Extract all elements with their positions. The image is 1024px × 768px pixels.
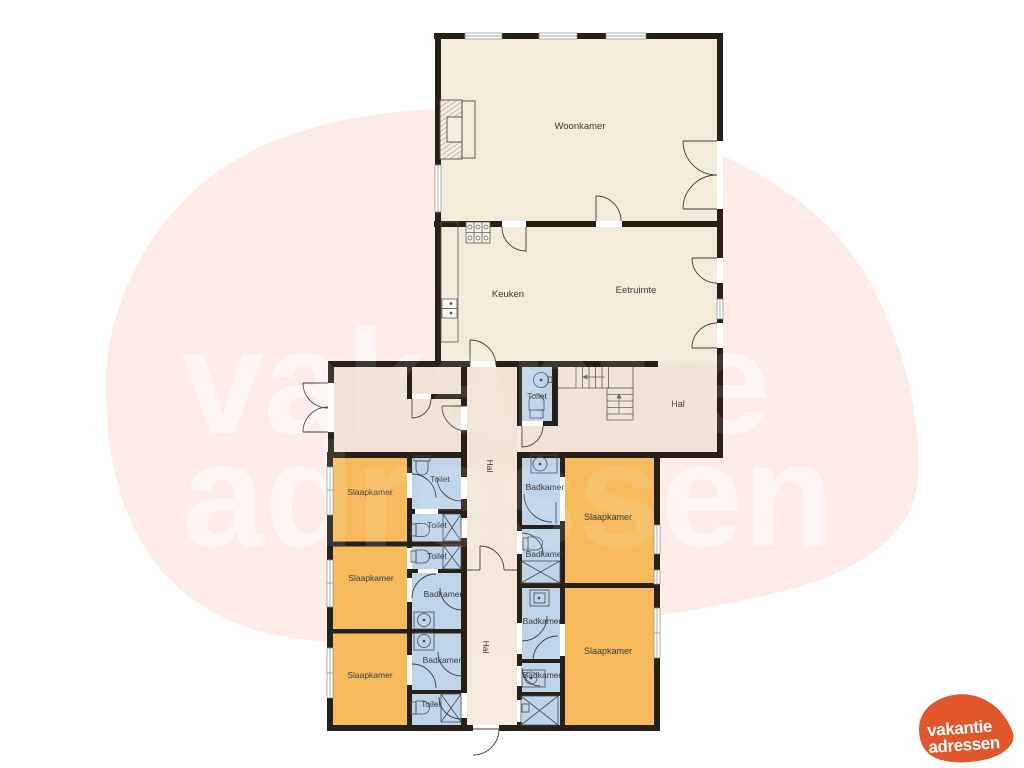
svg-text:Toilet: Toilet bbox=[421, 699, 441, 709]
svg-text:Badkamer: Badkamer bbox=[523, 670, 562, 680]
svg-text:Badkamer: Badkamer bbox=[423, 655, 462, 665]
svg-text:Slaapkamer: Slaapkamer bbox=[584, 646, 632, 656]
svg-text:Badkamer: Badkamer bbox=[523, 616, 562, 626]
svg-text:Badkamer: Badkamer bbox=[424, 589, 463, 599]
svg-text:Slaapkamer: Slaapkamer bbox=[347, 670, 393, 680]
svg-text:Hal: Hal bbox=[481, 641, 491, 654]
svg-text:Woonkamer: Woonkamer bbox=[554, 121, 605, 132]
svg-text:adressen: adressen bbox=[182, 413, 834, 578]
svg-text:Keuken: Keuken bbox=[492, 289, 524, 300]
svg-text:Eetruimte: Eetruimte bbox=[616, 285, 657, 296]
